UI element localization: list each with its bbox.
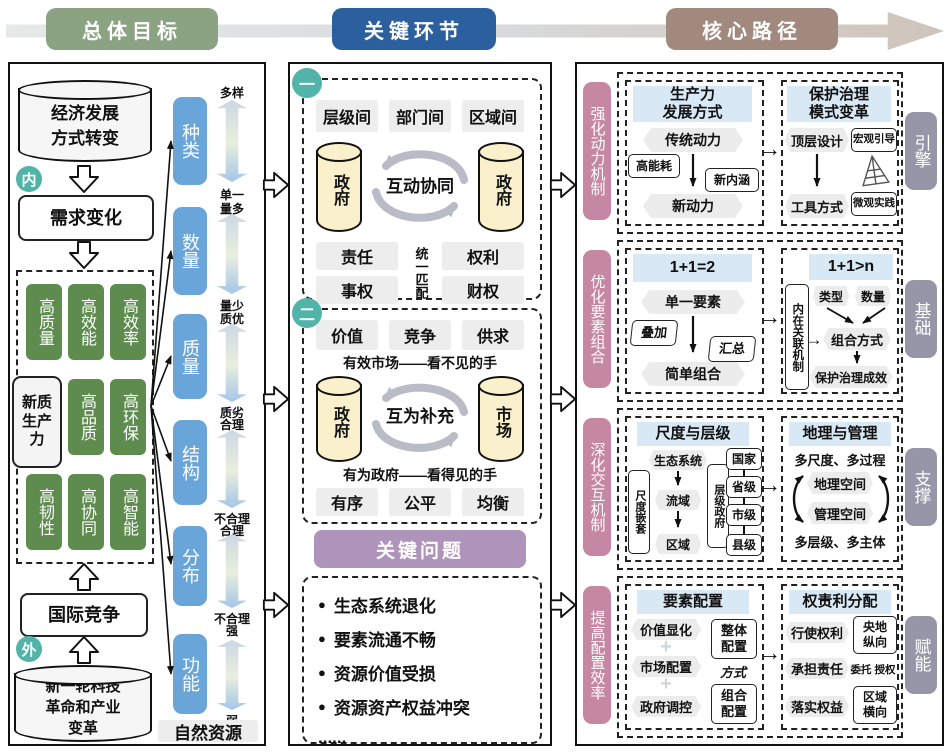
- section-two-badge: 二: [292, 298, 322, 328]
- category-box: 数量: [173, 207, 207, 295]
- tag: 区域间: [462, 100, 524, 132]
- down-arrow-icon: [849, 350, 865, 368]
- nq-label: 新质生产力: [21, 394, 53, 450]
- cyl-label: 政府: [327, 406, 351, 438]
- grid-item: 高效率: [110, 284, 146, 360]
- effective-market-line: 有效市场——看不见的手: [304, 354, 536, 372]
- converge-arrows: [813, 306, 893, 328]
- government-cylinder: 政府: [478, 142, 524, 232]
- problem-text: 资源资产权益冲突: [334, 694, 470, 719]
- bullet-icon: ●: [318, 699, 326, 714]
- combination-mode: 组合方式: [823, 328, 891, 350]
- section-one-badge: 一: [292, 68, 322, 98]
- header-line: 保护治理: [809, 86, 869, 104]
- tag-text: 组合配置: [720, 688, 748, 721]
- level-box: 县级: [726, 534, 762, 556]
- key-problems-header: 关键问题: [314, 530, 526, 568]
- inner-badge: 内: [16, 166, 42, 192]
- right-tag: 权利: [442, 242, 524, 270]
- section-tag: 支撑: [905, 448, 937, 526]
- gradient-arrow: [217, 640, 247, 710]
- exercise-rights: 行使权利: [785, 622, 849, 643]
- section-dynamics: 强化动力机制 引擎 生产力 发展方式 传统动力 高能耗 新内涵 新动力 → 保护…: [577, 72, 942, 230]
- header-line: 生产力: [670, 86, 715, 104]
- grid-item: 高质量: [26, 284, 62, 360]
- header-line: 地理与管理: [802, 425, 877, 443]
- category-box: 分布: [173, 526, 207, 606]
- gradient-arrow: [217, 214, 247, 294]
- grid-item: 高效能: [68, 284, 104, 360]
- micro-practice-tag: 微观实践: [851, 192, 897, 216]
- right-arrow-icon: →: [758, 638, 782, 668]
- cyl-label: 政府: [489, 174, 513, 206]
- demand-box: 需求变化: [18, 195, 154, 241]
- implement-rights: 落实权益: [785, 696, 849, 717]
- grid-item: 高智能: [110, 474, 146, 550]
- region-tag: 区域: [655, 534, 701, 554]
- new-power: 新动力: [643, 194, 743, 218]
- tag: 均衡: [462, 488, 524, 516]
- bullet-icon: ●: [318, 631, 326, 646]
- key-problems-box: ● 生态系统退化 ● 要素流通不畅 ● 资源价值受损 ● 资源资产权益冲突 ..…: [302, 576, 542, 744]
- assume-duty: 承担责任: [785, 658, 849, 679]
- cylinder-top: [316, 376, 362, 396]
- cylinder-top: [18, 80, 152, 100]
- tool-mode: 工具方式: [785, 194, 849, 218]
- tag: 竞争: [389, 320, 451, 350]
- problem-text: 生态系统退化: [334, 592, 436, 617]
- tag-text: 区域横向: [862, 690, 888, 720]
- finance-tag: 财权: [442, 276, 524, 304]
- cylinder-body: 政府: [478, 150, 524, 232]
- down-arrow-icon: [671, 510, 685, 532]
- problem-item: ● 生态系统退化: [318, 592, 540, 617]
- central-local-tag: 央地纵向: [853, 616, 897, 654]
- government-coordination-box: 层级间 部门间 区域间 政府 政府 互动协同 责任 权利 事权 财权 统一匹配: [302, 78, 542, 300]
- category-box: 结构: [173, 420, 207, 505]
- top-design: 顶层设计: [785, 128, 849, 152]
- flow-arrow: [549, 168, 577, 202]
- problem-item: ● 要素流通不畅: [318, 626, 540, 651]
- tag: 层级间: [316, 100, 378, 132]
- element-allocation-box: 要素配置 价值显化 + 市场配置 + 政府调控 整体配置 方式 组合配置: [625, 584, 764, 730]
- box-header: 权责利分配: [789, 590, 891, 614]
- section-side-label: 优化要素组合: [583, 250, 611, 388]
- unify-match-label: 统一匹配: [404, 238, 438, 308]
- ellipsis-text: ......: [318, 728, 346, 748]
- simple-combination: 简单组合: [641, 362, 745, 386]
- cyl-label: 市场: [489, 406, 513, 438]
- gradient-arrow: [217, 324, 247, 402]
- cat-top-label: 强: [205, 622, 259, 639]
- aggregate-tag: 汇总: [708, 336, 757, 362]
- flow-arrow: [262, 382, 290, 416]
- cylinder-body: 政府: [316, 150, 362, 232]
- superpose-tag: 叠加: [630, 320, 679, 346]
- cylinder-top: [478, 142, 524, 162]
- multi-level-line: 多层级、多主体: [783, 532, 897, 550]
- box-header: 1+1>n: [809, 254, 893, 280]
- simple-sum-box: 1+1=2 单一要素 叠加 汇总 简单组合: [625, 248, 764, 394]
- basin-tag: 流域: [655, 490, 701, 510]
- category-box: 质量: [173, 314, 207, 399]
- entrust-authorize-label: 委托 授权: [849, 660, 897, 678]
- box-header: 尺度与层级: [637, 422, 749, 446]
- grid-item: 高韧性: [26, 474, 62, 550]
- cyl-label: 政府: [327, 174, 351, 206]
- market-cylinder: 市场: [478, 376, 524, 462]
- flow-arrow: [262, 168, 290, 202]
- down-arrow-icon: [685, 314, 701, 358]
- single-element: 单一要素: [641, 290, 745, 314]
- section-side-label: 深化交互机制: [583, 418, 611, 556]
- cylinder-top: [316, 142, 362, 162]
- grid-item: 高环保: [110, 379, 146, 455]
- geo-space-tag: 地理空间: [807, 472, 873, 494]
- synergy-box: 1+1>n 内在关联机制 类型 数量 → 组合方式 保护治理成效: [781, 248, 899, 394]
- category-box: 功能: [173, 634, 207, 714]
- natural-resources-label: 自然资源: [158, 720, 258, 742]
- cylinder-top: [14, 665, 152, 685]
- middle-panel: 一 层级间 部门间 区域间 政府 政府 互动协同 责任 权利 事权 财权 统一匹…: [288, 62, 552, 746]
- right-arrow-icon: →: [758, 134, 782, 164]
- multi-scale-line: 多尺度、多过程: [783, 450, 897, 468]
- economy-cylinder: 经济发展方式转变: [18, 80, 152, 162]
- tag: 有序: [316, 488, 378, 516]
- market-government-box: 价值 竞争 供求 有效市场——看不见的手 政府 市场 互为补充 有为政府——看得…: [302, 308, 542, 524]
- section-elements: 优化要素组合 基础 1+1=2 单一要素 叠加 汇总 简单组合 → 1+1>n …: [577, 240, 942, 398]
- up-block-arrow: [67, 635, 101, 665]
- right-panel: 强化动力机制 引擎 生产力 发展方式 传统动力 高能耗 新内涵 新动力 → 保护…: [575, 62, 944, 746]
- right-arrow-icon: →: [805, 330, 823, 350]
- plus-icon: +: [655, 638, 677, 656]
- level-box: 市级: [726, 504, 762, 526]
- header-line: 1+1>n: [828, 257, 874, 276]
- government-cylinder: 政府: [316, 376, 362, 462]
- flow-arrow: [262, 588, 290, 622]
- header-line: 要素配置: [663, 593, 723, 611]
- section-tag: 基础: [905, 280, 937, 358]
- right-arrow-icon: →: [758, 302, 782, 332]
- governance-effect: 保护治理成效: [809, 366, 893, 388]
- down-arrow-icon: [671, 470, 685, 490]
- geo-management-box: 地理与管理 多尺度、多过程 地理空间 管理空间 多层级、多主体: [781, 416, 899, 562]
- scale-nesting-box: 尺度嵌套: [628, 470, 650, 554]
- problem-text: 资源价值受损: [334, 660, 436, 685]
- flow-arrow: [549, 382, 577, 416]
- duty-tag: 责任: [316, 242, 398, 270]
- box-header: 生产力 发展方式: [633, 86, 752, 122]
- cycle-label: 互动协同: [366, 168, 474, 200]
- header-line: 发展方式: [662, 104, 722, 122]
- box-header: 地理与管理: [789, 422, 891, 446]
- competition-box: 国际竞争: [20, 593, 148, 637]
- left-panel: 经济发展方式转变 内 需求变化 高质量 高效能 高效率 高品质 高环保 高韧性 …: [8, 62, 266, 746]
- section-tag: 引擎: [905, 112, 937, 190]
- header-line: 权责利分配: [802, 593, 877, 611]
- gradient-arrow: [217, 430, 247, 508]
- up-block-arrow: [67, 562, 101, 592]
- ecosystem-tag: 生态系统: [649, 450, 707, 470]
- high-energy-tag: 高能耗: [628, 154, 680, 178]
- exchange-arrow-right: [875, 470, 895, 528]
- tag-text: 央地纵向: [862, 620, 888, 650]
- productivity-mode-box: 生产力 发展方式 传统动力 高能耗 新内涵 新动力: [625, 80, 764, 226]
- governance-change-box: 保护治理 模式变革 顶层设计 工具方式 宏观引导 微观实践: [781, 80, 899, 226]
- box-header: 保护治理 模式变革: [787, 86, 891, 122]
- problem-item: ● 资源资产权益冲突: [318, 694, 540, 719]
- stage-overall-goal: 总体目标: [46, 8, 218, 50]
- section-allocation: 提高配置效率 赋能 要素配置 价值显化 + 市场配置 + 政府调控 整体配置 方…: [577, 576, 942, 734]
- grid-item: 高协同: [68, 474, 104, 550]
- tag: 供求: [462, 320, 524, 350]
- section-side-label: 提高配置效率: [583, 586, 611, 724]
- quantity-tag: 数量: [855, 286, 891, 306]
- level-box: 国家: [726, 448, 762, 470]
- pyramid-icon: [857, 150, 892, 190]
- bullet-icon: ●: [318, 597, 326, 612]
- overall-allocation-tag: 整体配置: [711, 619, 757, 659]
- mgmt-space-tag: 管理空间: [807, 502, 873, 524]
- gradient-arrow: [217, 534, 247, 608]
- problem-text: 要素流通不畅: [334, 626, 436, 651]
- new-connotation-tag: 新内涵: [705, 168, 759, 192]
- flow-arrow: [549, 588, 577, 622]
- down-arrow-icon: [685, 152, 701, 192]
- problem-item-more: ......: [318, 728, 540, 748]
- problem-item: ● 资源价值受损: [318, 660, 540, 685]
- cycle-label: 互为补充: [366, 398, 474, 430]
- right-arrow-icon: →: [758, 470, 782, 500]
- tag: 部门间: [389, 100, 451, 132]
- header-line: 尺度与层级: [655, 425, 730, 443]
- gradient-arrow: [217, 100, 247, 182]
- section-interaction: 深化交互机制 支撑 尺度与层级 尺度嵌套 生态系统 流域 区域 层级政府 国家 …: [577, 408, 942, 566]
- stage-core-paths: 核心路径: [666, 8, 838, 50]
- combined-allocation-tag: 组合配置: [711, 684, 757, 724]
- category-box: 种类: [173, 97, 207, 185]
- stage-key-links: 关键环节: [332, 8, 496, 50]
- regional-lateral-tag: 区域横向: [853, 686, 897, 724]
- government-cylinder: 政府: [316, 142, 362, 232]
- down-arrow-icon: [809, 152, 825, 192]
- macro-guidance-tag: 宏观引导: [851, 128, 897, 152]
- new-quality-productivity-box: 新质生产力: [12, 376, 62, 468]
- section-tag: 赋能: [905, 616, 937, 694]
- section-side-label: 强化动力机制: [583, 82, 611, 220]
- exchange-arrow-left: [787, 470, 807, 528]
- tech-revolution-cylinder: 新一轮科技革命和产业变革: [14, 665, 152, 742]
- tag: 价值: [316, 320, 378, 350]
- tag: 公平: [389, 488, 451, 516]
- plus-icon: +: [655, 675, 677, 693]
- traditional-power: 传统动力: [643, 128, 743, 152]
- bullet-icon: ●: [318, 665, 326, 680]
- mode-label: 方式: [711, 662, 755, 680]
- type-tag: 类型: [813, 286, 849, 306]
- outer-badge: 外: [16, 636, 42, 662]
- level-box: 省级: [726, 476, 762, 498]
- down-block-arrow: [67, 240, 101, 270]
- government-regulation: 政府调控: [631, 696, 701, 717]
- visible-hand-line: 有为政府——看得见的手: [304, 466, 536, 484]
- tag-text: 整体配置: [720, 623, 748, 656]
- box-header: 1+1=2: [633, 254, 752, 282]
- cylinder-top: [478, 376, 524, 396]
- grid-item: 高品质: [68, 379, 104, 455]
- cat-top-label: 多样: [205, 84, 259, 101]
- scale-hierarchy-box: 尺度与层级 尺度嵌套 生态系统 流域 区域 层级政府 国家 省级 市级 县级: [625, 416, 764, 562]
- header-line: 1+1=2: [670, 258, 715, 277]
- box-header: 要素配置: [637, 590, 749, 614]
- economy-label: 经济发展方式转变: [48, 99, 122, 149]
- rights-distribution-box: 权责利分配 行使权利 央地纵向 承担责任 委托 授权 落实权益 区域横向: [781, 584, 899, 730]
- down-block-arrow: [67, 164, 101, 194]
- affairs-tag: 事权: [316, 276, 398, 304]
- diagram-canvas: 总体目标 关键环节 核心路径 经济发展方式转变 内 需求变化 高质量 高效能 高…: [0, 0, 950, 752]
- header-line: 模式变革: [809, 104, 869, 122]
